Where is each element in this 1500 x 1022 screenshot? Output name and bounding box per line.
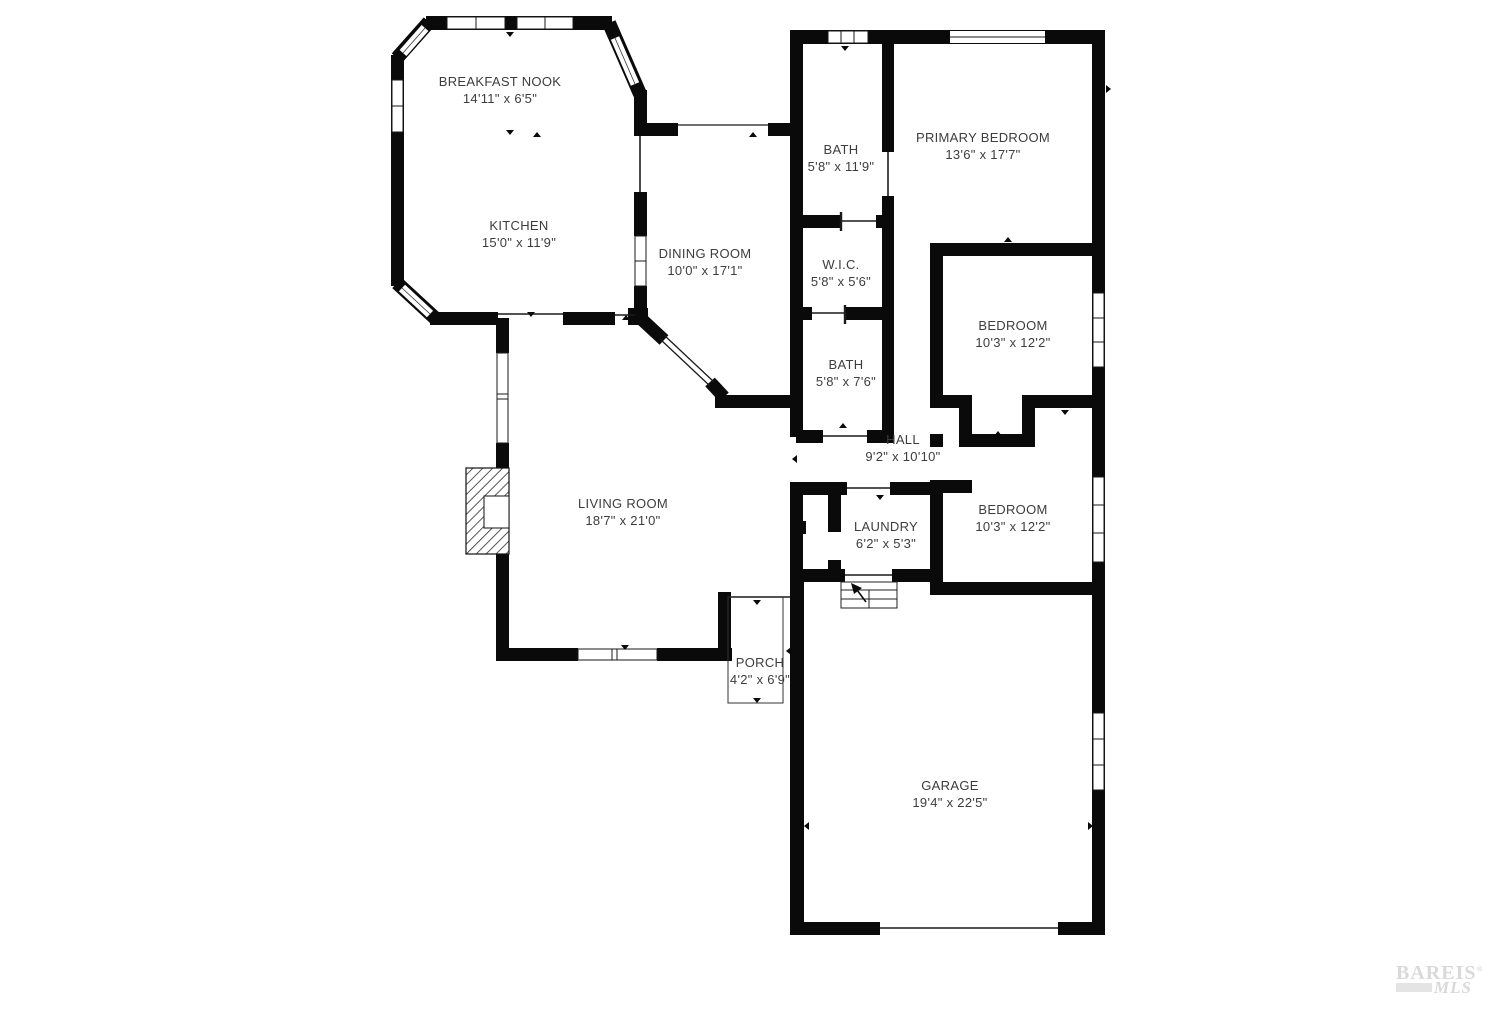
kitchen-walls [391,16,648,325]
room-label-bedroom-2: BEDROOM10'3" x 12'2" [975,501,1050,535]
room-label-bath-1: BATH5'8" x 11'9" [808,141,875,175]
floor-plan [0,0,1500,1022]
wing-door-openings [812,152,888,436]
bareis-mls-watermark: BAREIS® MLS [1396,963,1496,996]
living-room-walls [496,318,732,661]
room-label-garage: GARAGE19'4" x 22'5" [912,777,987,811]
garage-steps [841,582,897,608]
room-label-kitchen: KITCHEN15'0" x 11'9" [482,217,556,251]
room-label-bedroom-1: BEDROOM10'3" x 12'2" [975,317,1050,351]
garage-walls [790,578,1105,935]
floor-plan-page: BREAKFAST NOOK14'11" x 6'5" KITCHEN15'0"… [0,0,1500,1022]
room-label-primary-bedroom: PRIMARY BEDROOM13'6" x 17'7" [916,129,1050,163]
room-label-wic: W.I.C.5'8" x 5'6" [811,256,871,290]
kitchen-bay-windows [402,28,635,314]
room-label-porch: PORCH4'2" x 6'9" [730,654,790,688]
room-label-laundry: LAUNDRY6'2" x 5'3" [854,518,918,552]
room-label-living-room: LIVING ROOM18'7" x 21'0" [578,495,668,529]
watermark-mls: MLS [1434,979,1472,996]
room-label-breakfast-nook: BREAKFAST NOOK14'11" x 6'5" [439,73,561,107]
watermark-bars-icon [1396,983,1432,992]
room-label-hall: HALL9'2" x 10'10" [865,431,940,465]
fireplace [466,468,509,554]
room-label-dining-room: DINING ROOM10'0" x 17'1" [659,245,752,279]
dining-walls [634,30,803,437]
room-label-bath-2: BATH5'8" x 7'6" [816,356,876,390]
